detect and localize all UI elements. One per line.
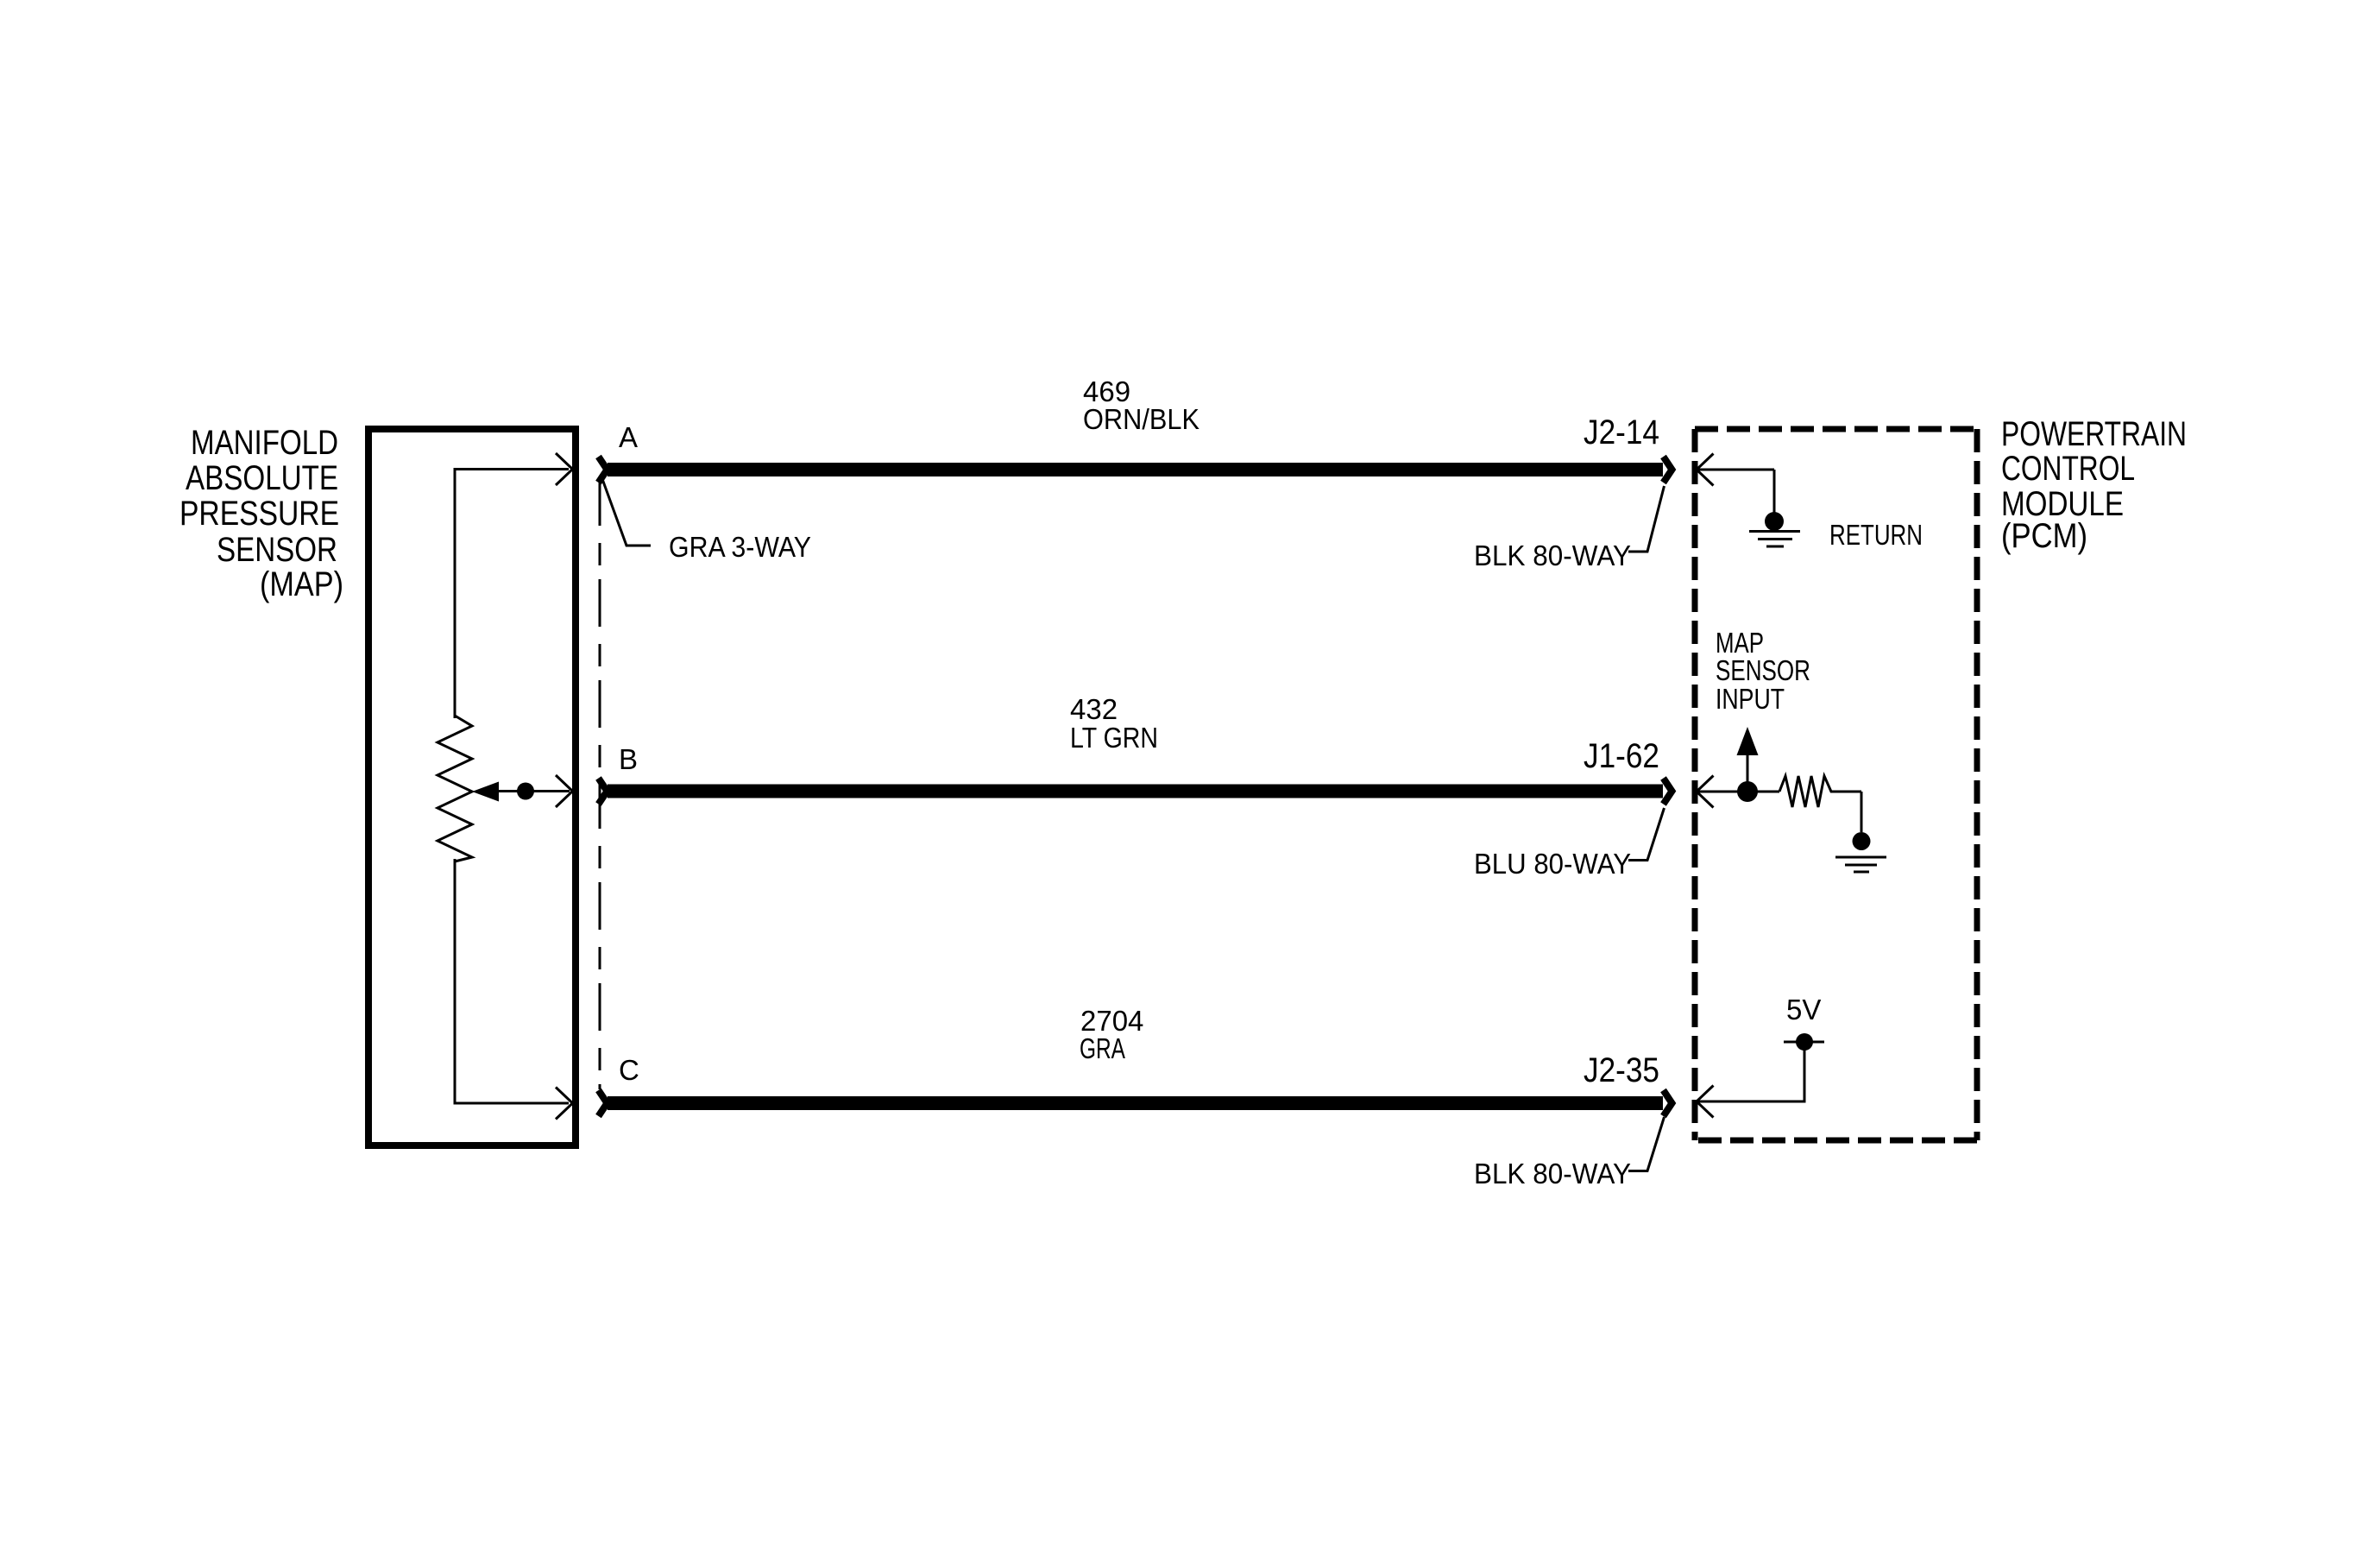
svg-text:ABSOLUTE: ABSOLUTE <box>186 459 338 497</box>
svg-text:GRA 3-WAY: GRA 3-WAY <box>669 531 811 563</box>
svg-text:BLK 80-WAY: BLK 80-WAY <box>1474 1158 1631 1190</box>
svg-text:(PCM): (PCM) <box>2001 517 2087 555</box>
svg-text:BLU 80-WAY: BLU 80-WAY <box>1474 848 1631 880</box>
svg-text:SENSOR: SENSOR <box>217 531 337 569</box>
svg-text:RETURN: RETURN <box>1829 519 1923 551</box>
svg-text:CONTROL: CONTROL <box>2001 450 2135 488</box>
svg-text:C: C <box>619 1054 639 1086</box>
svg-text:B: B <box>619 743 638 775</box>
svg-text:MANIFOLD: MANIFOLD <box>191 424 338 462</box>
svg-text:J1-62: J1-62 <box>1584 737 1659 775</box>
svg-text:PRESSURE: PRESSURE <box>179 495 339 533</box>
svg-text:BLK 80-WAY: BLK 80-WAY <box>1474 540 1631 571</box>
svg-text:A: A <box>619 421 638 453</box>
svg-text:SENSOR: SENSOR <box>1716 654 1810 686</box>
svg-text:J2-14: J2-14 <box>1584 413 1659 451</box>
svg-text:INPUT: INPUT <box>1716 683 1785 715</box>
svg-text:432: 432 <box>1070 693 1118 725</box>
svg-text:POWERTRAIN: POWERTRAIN <box>2001 415 2187 453</box>
svg-text:ORN/BLK: ORN/BLK <box>1083 403 1199 435</box>
svg-text:GRA: GRA <box>1080 1032 1125 1064</box>
svg-text:(MAP): (MAP) <box>260 565 343 603</box>
svg-text:J2-35: J2-35 <box>1584 1051 1659 1089</box>
svg-text:LT GRN: LT GRN <box>1070 722 1158 754</box>
svg-text:5V: 5V <box>1786 994 1821 1025</box>
